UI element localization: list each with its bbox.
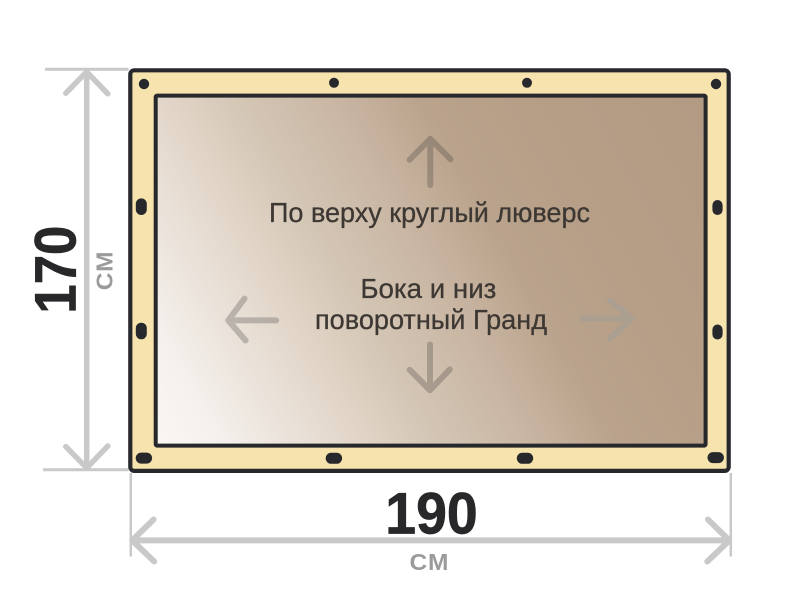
svg-text:170: 170 <box>24 226 89 314</box>
svg-text:По верху круглый люверс: По верху круглый люверс <box>269 197 590 228</box>
svg-text:СМ: СМ <box>91 250 117 290</box>
svg-text:190: 190 <box>385 482 478 547</box>
svg-text:поворотный Гранд: поворотный Гранд <box>315 304 547 335</box>
svg-text:Бока и низ: Бока и низ <box>360 273 496 304</box>
svg-text:СМ: СМ <box>410 549 450 575</box>
